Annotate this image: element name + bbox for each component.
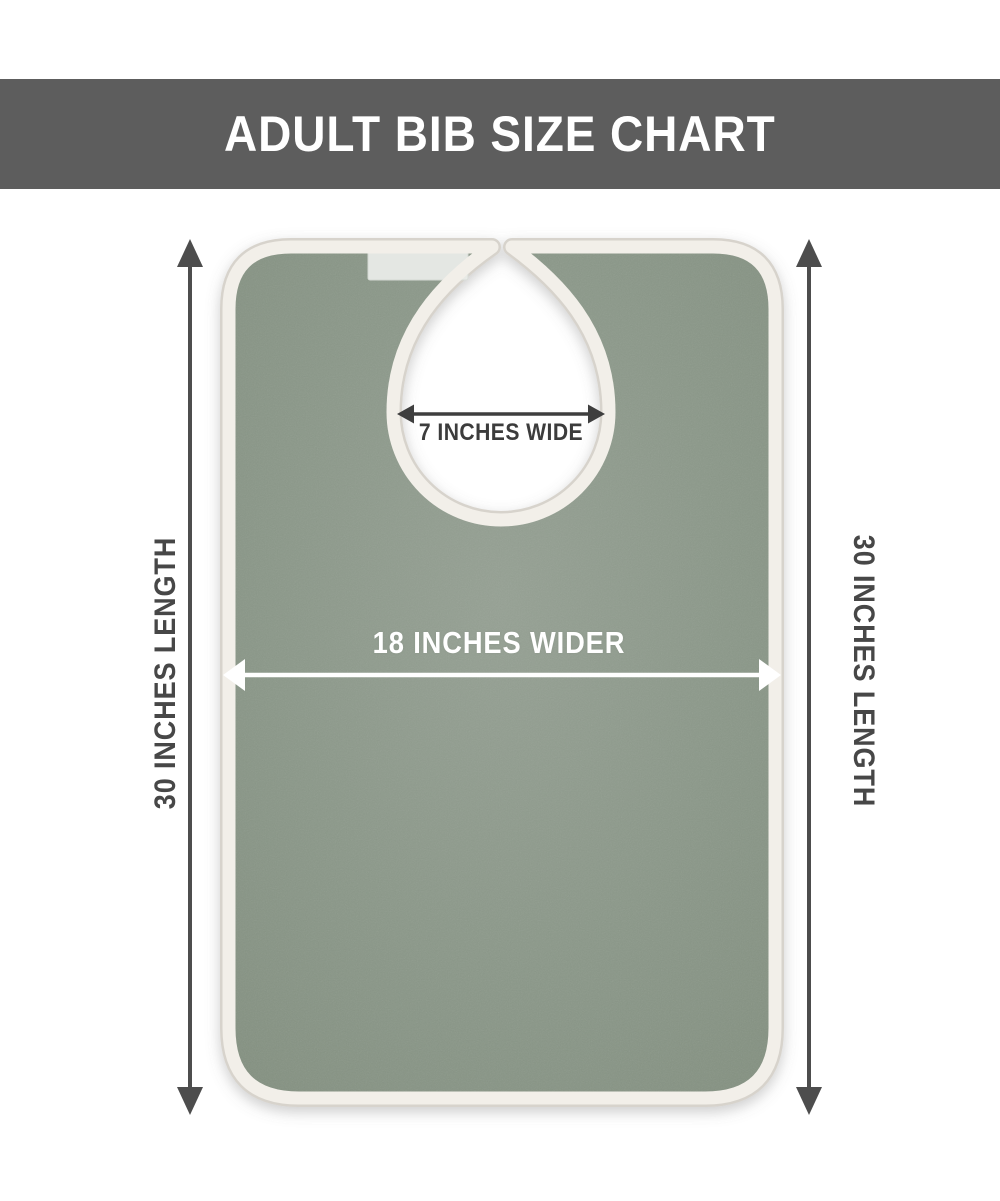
bib-size-chart-infographic: ADULT BIB SIZE CHART (0, 0, 1000, 1201)
left-length-label: 30 INCHES LENGTH (148, 448, 184, 898)
width-label: 18 INCHES WIDER (279, 626, 719, 660)
right-length-arrow-icon (796, 239, 822, 1115)
right-length-label: 30 INCHES LENGTH (845, 446, 881, 896)
bib-shape (215, 230, 790, 1115)
neck-width-label: 7 INCHES WIDE (369, 420, 633, 446)
fabric-texture (215, 230, 790, 1115)
